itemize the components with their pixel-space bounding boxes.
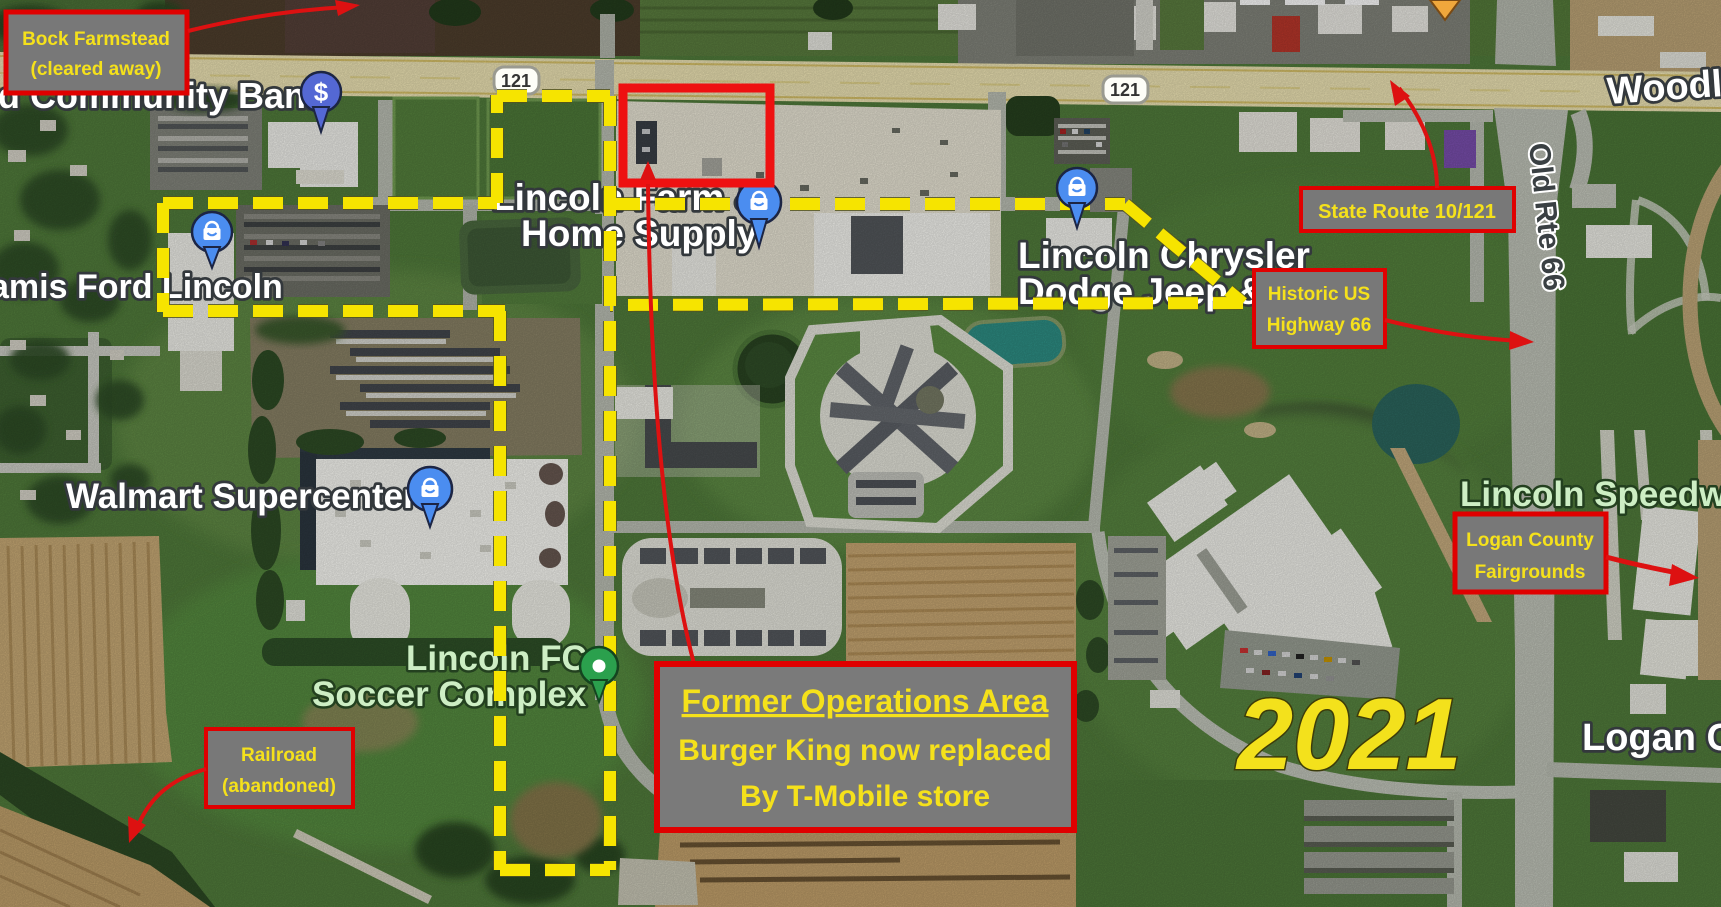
svg-text:Soccer Complex: Soccer Complex	[312, 675, 587, 714]
svg-text:Highway 66: Highway 66	[1267, 315, 1372, 336]
svg-text:Burger King now replaced: Burger King now replaced	[678, 734, 1051, 767]
svg-text:Walmart Supercenter: Walmart Supercenter	[66, 477, 417, 516]
svg-text:Lincoln Speedway: Lincoln Speedway	[1460, 475, 1721, 514]
svg-text:121: 121	[1110, 80, 1140, 100]
svg-text:Bock Farmstead: Bock Farmstead	[22, 29, 170, 50]
svg-text:$: $	[314, 77, 329, 107]
svg-text:2021: 2021	[1235, 679, 1462, 791]
svg-text:Former Operations Area: Former Operations Area	[682, 683, 1049, 719]
svg-text:Logan Co: Logan Co	[1582, 717, 1721, 759]
svg-text:amis Ford Lincoln: amis Ford Lincoln	[0, 268, 283, 306]
svg-text:Logan County: Logan County	[1466, 530, 1594, 551]
svg-text:State Route 10/121: State Route 10/121	[1318, 201, 1496, 223]
svg-text:Historic US: Historic US	[1268, 284, 1370, 305]
svg-text:(cleared away): (cleared away)	[31, 59, 162, 80]
svg-text:By T-Mobile store: By T-Mobile store	[740, 780, 990, 813]
svg-text:(abandoned): (abandoned)	[222, 776, 336, 797]
svg-text:Home Supply: Home Supply	[521, 213, 758, 254]
svg-text:Fairgrounds: Fairgrounds	[1475, 562, 1586, 583]
svg-text:Railroad: Railroad	[241, 745, 317, 766]
svg-text:121: 121	[501, 71, 531, 91]
